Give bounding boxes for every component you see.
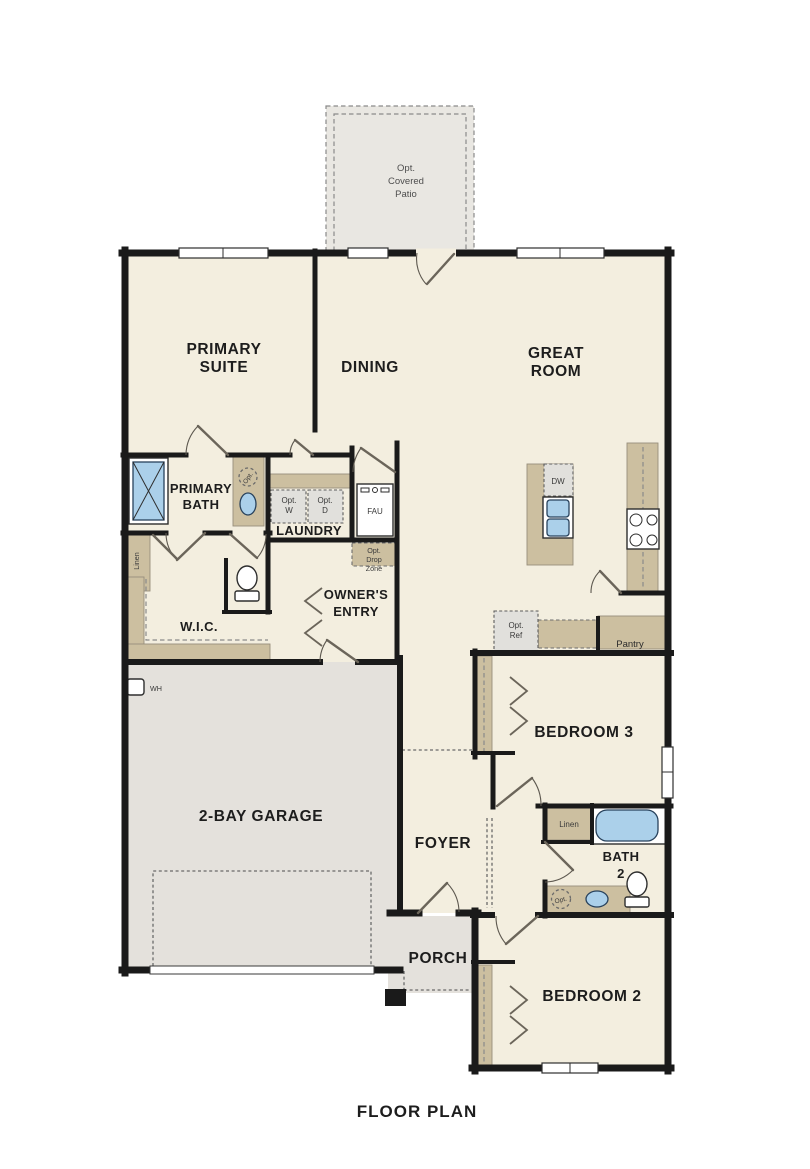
dining-label: DINING	[341, 359, 399, 376]
patio-label-2: Covered	[388, 176, 424, 187]
foyer-label: FOYER	[415, 835, 471, 852]
bedroom3-label: BEDROOM 3	[534, 724, 633, 741]
primary-bath-label-2: BATH	[183, 497, 220, 512]
garage-label: 2-BAY GARAGE	[199, 808, 323, 825]
drop-zone-label-1: Opt.	[367, 546, 381, 555]
wic-label: W.I.C.	[180, 619, 218, 634]
bath2-label-1: BATH	[603, 849, 640, 864]
floor-plan-page: Opt. Covered Patio PRIMARY SUITE DINING …	[0, 0, 810, 1169]
bath2-label-2: 2	[617, 866, 625, 881]
opt-dryer-label-2: D	[322, 506, 328, 515]
patio-label-1: Opt.	[397, 163, 415, 174]
water-heater-label: WH	[150, 684, 162, 693]
great-room-label-1: GREAT	[528, 345, 584, 362]
bathtub	[596, 810, 658, 841]
garage-door-opening	[150, 966, 374, 974]
bedroom2-label: BEDROOM 2	[542, 988, 641, 1005]
bath2-toilet-tank	[625, 897, 649, 907]
plan-caption: FLOOR PLAN	[357, 1102, 478, 1121]
drop-zone-label-3: Zone	[366, 564, 382, 573]
dishwasher-label: DW	[551, 477, 565, 486]
island-sink-basin-2	[547, 519, 569, 536]
opt-ref-label-1: Opt.	[508, 621, 523, 630]
floor-plan-drawing: Opt. Covered Patio PRIMARY SUITE DINING …	[0, 0, 810, 1169]
island-sink-basin-1	[547, 500, 569, 517]
opt-washer-label-2: W	[285, 506, 293, 515]
dining-window	[348, 248, 388, 258]
bath2-linen-label: Linen	[559, 820, 579, 829]
owners-entry-label-2: ENTRY	[333, 604, 379, 619]
opt-washer-label-1: Opt.	[281, 496, 296, 505]
porch-post	[385, 989, 406, 1006]
patio-label-3: Patio	[395, 189, 417, 200]
primary-sink	[240, 493, 256, 515]
owners-entry-label-1: OWNER'S	[324, 587, 388, 602]
fau-label: FAU	[367, 507, 383, 516]
opt-ref-label-2: Ref	[510, 631, 523, 640]
water-heater	[127, 679, 144, 695]
primary-bath-label-1: PRIMARY	[170, 481, 232, 496]
bath2-sink	[586, 891, 608, 907]
opt-dryer-label-1: Opt.	[317, 496, 332, 505]
patio-door-opening	[416, 249, 456, 259]
laundry-label: LAUNDRY	[276, 523, 342, 538]
great-room-label-2: ROOM	[531, 363, 582, 380]
wic-shelf-bottom	[127, 644, 270, 661]
pantry-label: Pantry	[616, 639, 644, 650]
primary-suite-label-2: SUITE	[200, 359, 249, 376]
drop-zone-label-2: Drop	[366, 555, 382, 564]
primary-toilet-bowl	[237, 566, 257, 590]
bath2-toilet-bowl	[627, 872, 647, 896]
porch-label: PORCH	[409, 950, 468, 967]
laundry-counter	[269, 474, 352, 488]
primary-toilet-tank	[235, 591, 259, 601]
primary-suite-label-1: PRIMARY	[186, 341, 261, 358]
primary-linen-label: Linen	[132, 552, 141, 570]
kitchen-counter-bottom	[538, 620, 598, 648]
